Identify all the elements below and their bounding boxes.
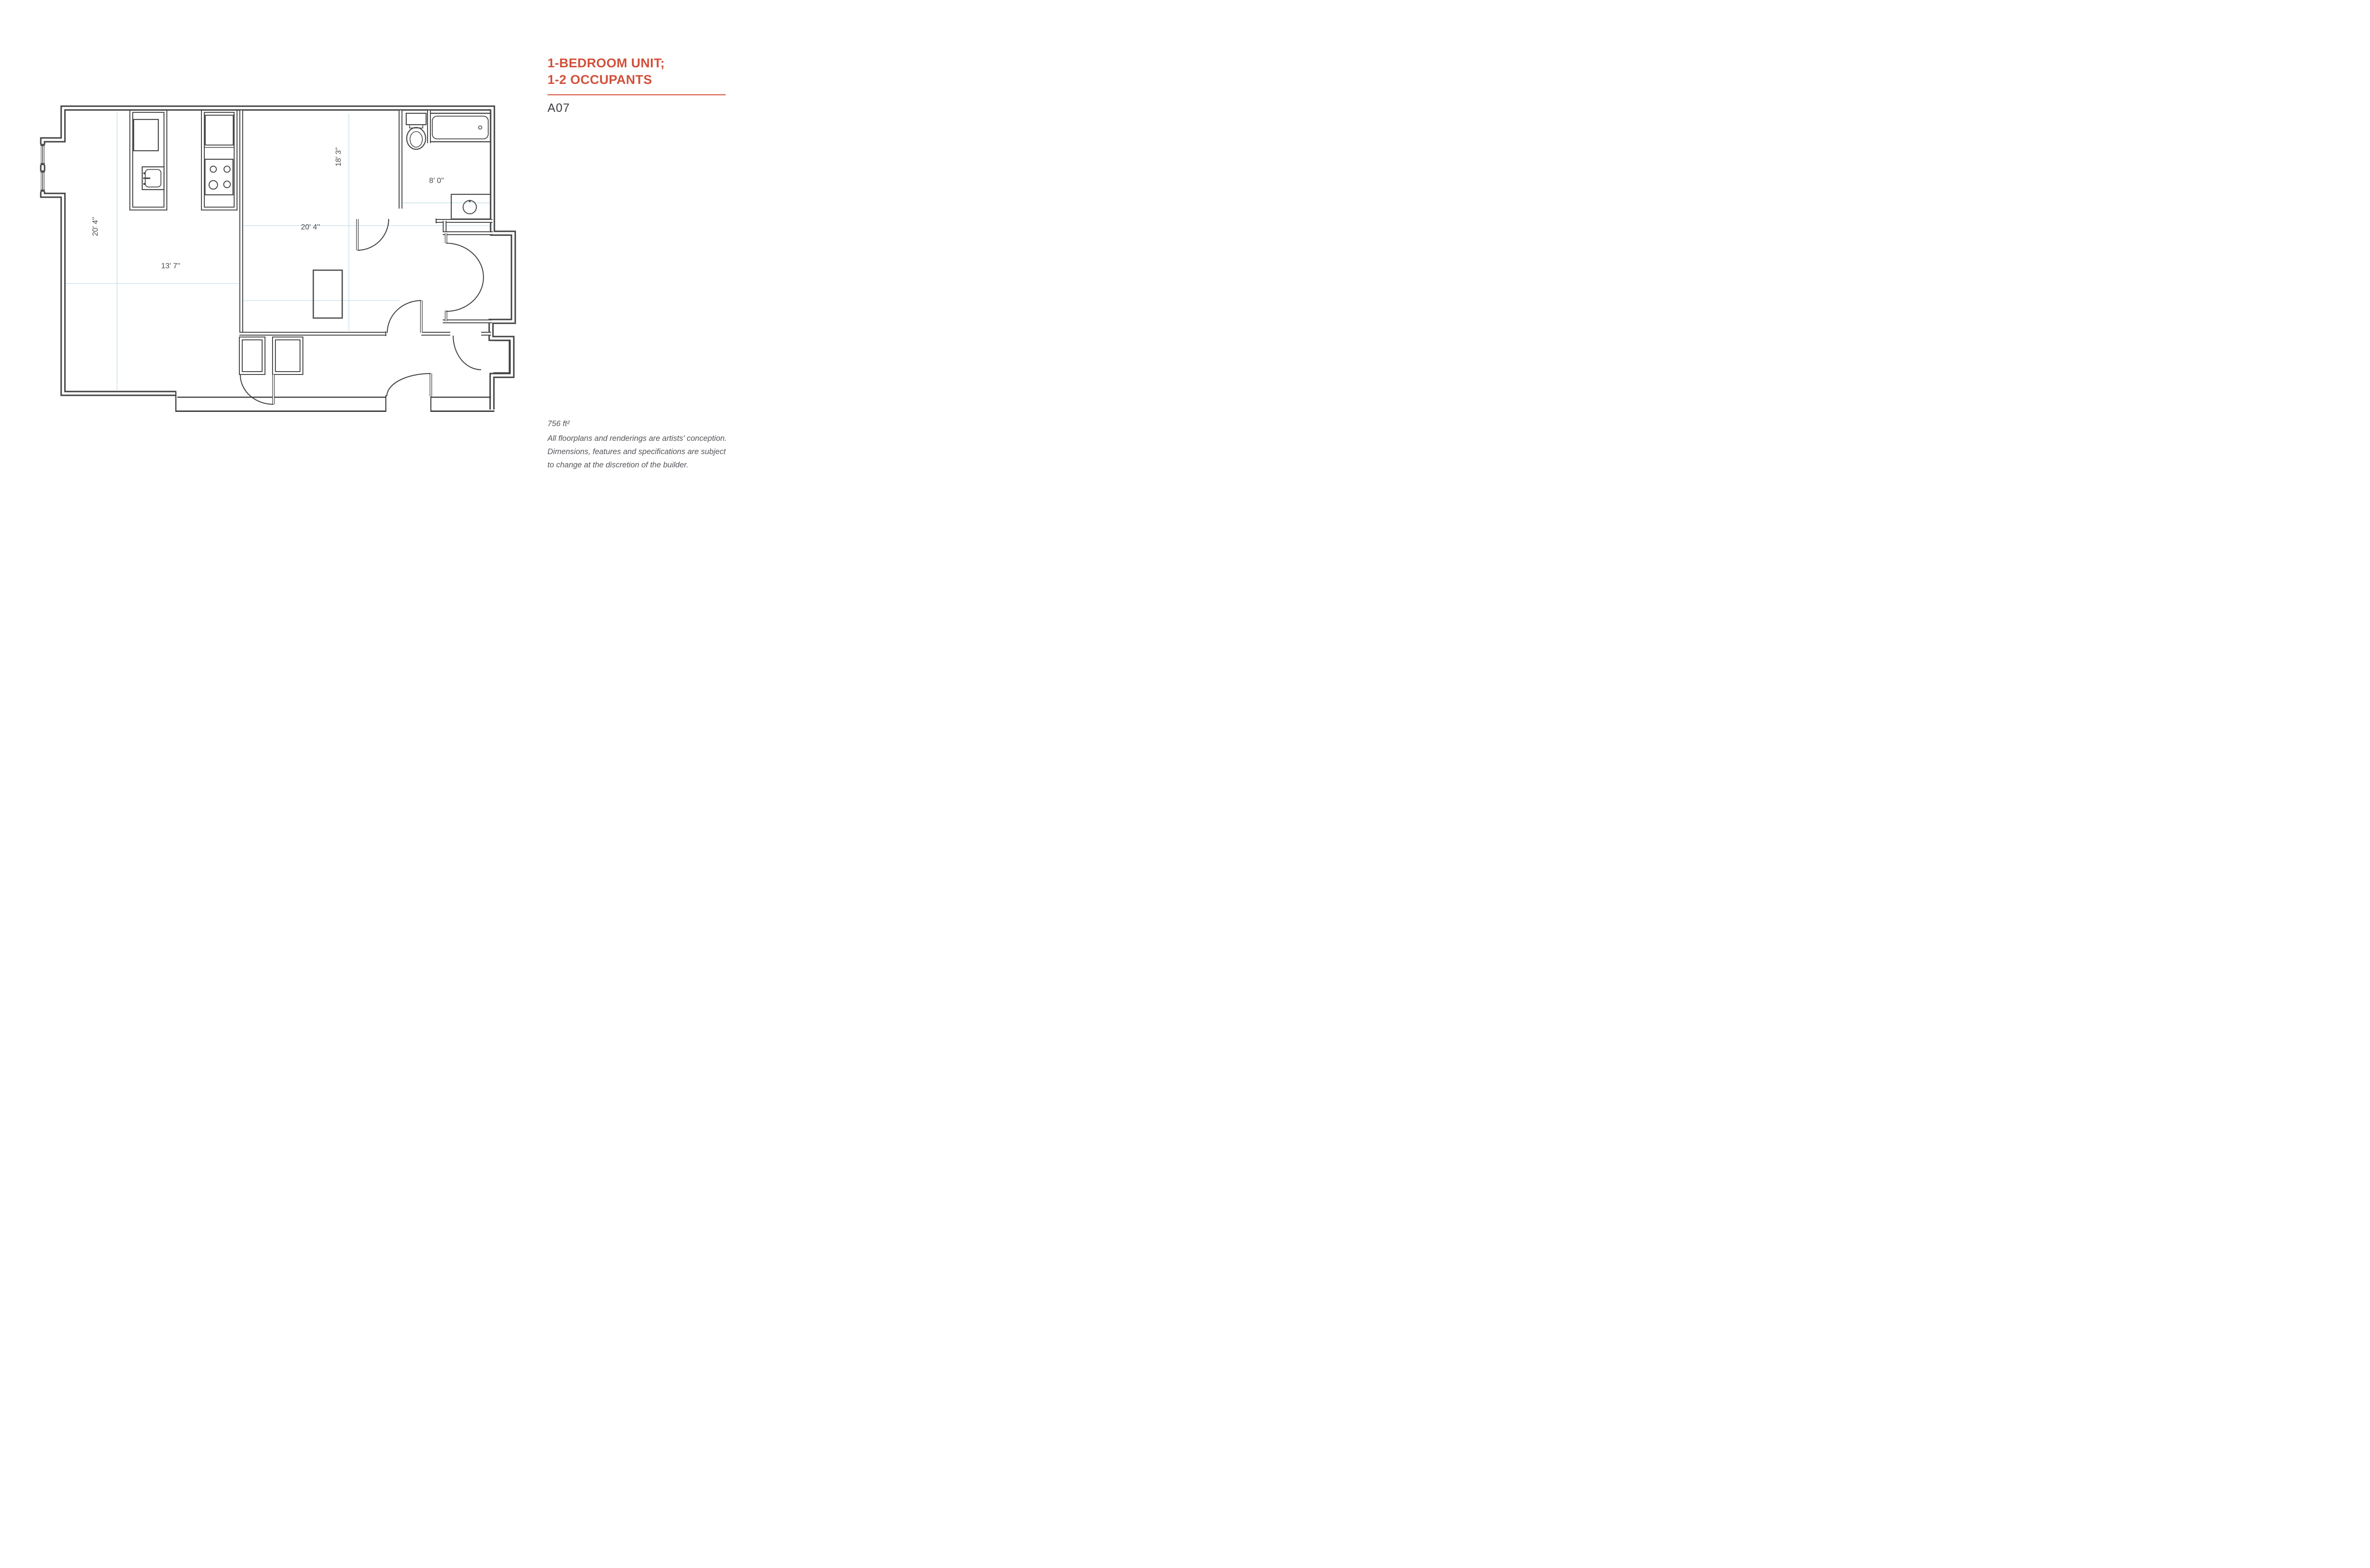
closet-right: [274, 338, 301, 373]
toilet-tank: [406, 113, 426, 125]
accent-divider: [547, 94, 726, 95]
page-title-line1: 1-BEDROOM UNIT;: [547, 55, 728, 72]
kitchen-island-counter: [131, 111, 165, 209]
gridlines: [64, 112, 490, 390]
window-sill: [41, 171, 45, 173]
wardrobe-door-swing-upper: [446, 243, 483, 277]
wardrobe-door-swing-lower: [446, 277, 483, 311]
kitchen: [131, 111, 236, 209]
toilet-bowl-inner: [410, 132, 422, 147]
bathtub-basin: [432, 116, 488, 139]
vanity-faucet: [469, 200, 471, 202]
footer: 756 ft² All floorplans and renderings ar…: [547, 417, 728, 472]
vestibule-door-swing: [453, 336, 481, 370]
stove-burner: [210, 166, 217, 173]
toilet-bowl: [407, 128, 426, 149]
page-title-line2: 1-2 OCCUPANTS: [547, 72, 728, 88]
window-sill: [41, 163, 45, 165]
kitchen-cabinet: [134, 119, 158, 151]
bedroom-storage: [241, 270, 342, 373]
faucet-handle: [143, 183, 146, 185]
exterior-outline: [43, 108, 513, 410]
bedroom-door-swing: [387, 301, 421, 333]
bathroom-vanity: [451, 194, 491, 219]
dim-bedroom-horizontal: 20' 4'': [301, 223, 320, 231]
unit-code: A07: [547, 101, 728, 115]
exterior-walls: [43, 108, 513, 412]
title-block: 1-BEDROOM UNIT; 1-2 OCCUPANTS A07: [547, 55, 728, 115]
bathtub-drain: [479, 126, 482, 129]
entry-door-swing: [387, 374, 431, 396]
vanity-sink: [463, 201, 476, 214]
dim-bedroom-vertical: 18' 3'': [335, 147, 343, 166]
stove-burner: [224, 181, 230, 188]
window-sill: [41, 144, 45, 146]
faucet-handle: [143, 172, 146, 174]
disclaimer-line: to change at the discretion of the build…: [547, 458, 728, 472]
bathroom-door-swing: [357, 219, 389, 250]
kitchen-counter-cabinet: [205, 115, 233, 145]
interior-walls: [239, 110, 509, 373]
stove-burner: [224, 166, 230, 173]
stove-burner: [209, 181, 218, 189]
doors: [240, 219, 483, 404]
unit-area: 756 ft²: [547, 417, 728, 430]
kitchen-stove: [205, 159, 233, 195]
disclaimer-line: Dimensions, features and specifications …: [547, 445, 728, 458]
window-sill: [41, 190, 45, 192]
page: 20' 4'' 13' 7'' 18' 3'' 20' 4'' 8' 0'' 1…: [0, 0, 732, 474]
column-box: [313, 270, 342, 318]
dim-living-horizontal: 13' 7'': [161, 262, 180, 270]
dim-living-vertical: 20' 4'': [91, 217, 100, 236]
entry-closet-inner: [493, 341, 509, 373]
dim-bathroom-horizontal: 8' 0'': [429, 177, 444, 185]
closet-door-swing: [240, 375, 273, 404]
disclaimer-line: All floorplans and renderings are artist…: [547, 432, 728, 445]
closet-left: [241, 338, 264, 373]
